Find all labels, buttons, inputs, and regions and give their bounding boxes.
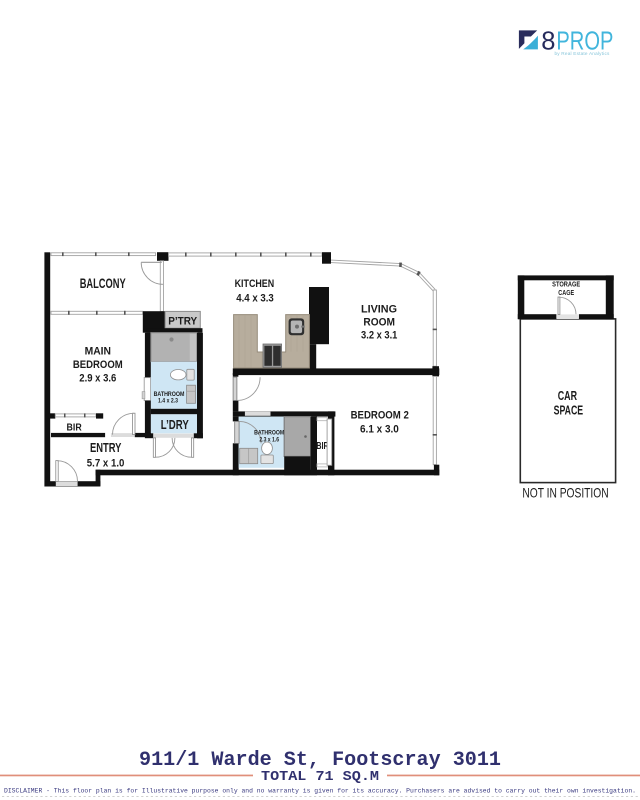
svg-text:CAR: CAR <box>558 389 577 403</box>
svg-text:SPACE: SPACE <box>554 404 584 418</box>
svg-text:4.4 x 3.3: 4.4 x 3.3 <box>236 292 274 304</box>
svg-text:NOT IN POSITION: NOT IN POSITION <box>522 486 608 501</box>
svg-text:1.4 x 2.3: 1.4 x 2.3 <box>158 397 178 404</box>
svg-text:LIVING: LIVING <box>361 304 397 316</box>
svg-text:5.7 x 1.0: 5.7 x 1.0 <box>87 457 125 469</box>
svg-text:911/1 Warde St, Footscray 3011: 911/1 Warde St, Footscray 3011 <box>139 749 501 772</box>
svg-text:3.2 x 3.1: 3.2 x 3.1 <box>361 330 397 342</box>
svg-text:BALCONY: BALCONY <box>80 276 126 291</box>
svg-text:2.9 x 3.6: 2.9 x 3.6 <box>79 372 116 384</box>
svg-text:L’DRY: L’DRY <box>161 418 190 432</box>
svg-text:CAGE: CAGE <box>558 288 574 297</box>
svg-text:ROOM: ROOM <box>363 317 395 329</box>
svg-text:2.3 x 1.6: 2.3 x 1.6 <box>259 436 279 443</box>
svg-text:MAIN: MAIN <box>85 345 111 357</box>
svg-text:8: 8 <box>541 28 555 56</box>
svg-text:by Real Estate Analytics: by Real Estate Analytics <box>554 51 610 56</box>
svg-text:DISCLAIMER - This floor plan i: DISCLAIMER - This floor plan is for Illu… <box>4 788 636 796</box>
svg-text:TOTAL 71 SQ.M: TOTAL 71 SQ.M <box>261 770 379 785</box>
svg-text:P’TRY: P’TRY <box>168 315 198 327</box>
svg-text:BEDROOM 2: BEDROOM 2 <box>351 410 409 422</box>
svg-text:BIR: BIR <box>67 422 83 433</box>
svg-text:STORAGE: STORAGE <box>552 279 580 288</box>
svg-text:KITCHEN: KITCHEN <box>235 278 275 290</box>
svg-text:6.1 x 3.0: 6.1 x 3.0 <box>360 423 399 435</box>
svg-text:BEDROOM: BEDROOM <box>73 359 123 371</box>
svg-text:ENTRY: ENTRY <box>90 441 122 455</box>
